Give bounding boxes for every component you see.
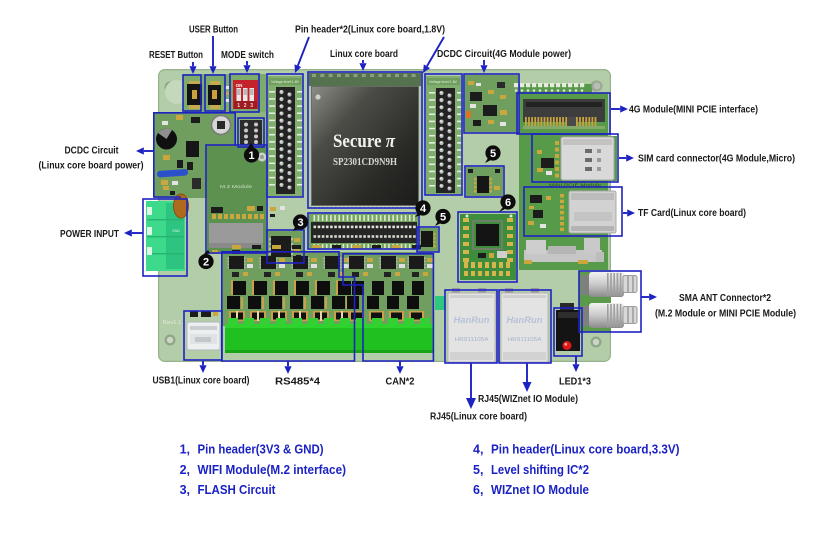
svg-text:5: 5 [490,148,496,160]
svg-text:5: 5 [440,211,446,223]
svg-text:3,: 3, [180,483,190,497]
svg-text:5,: 5, [473,463,483,477]
svg-text:1: 1 [237,103,240,109]
svg-text:Level shifting IC*2: Level shifting IC*2 [491,463,589,477]
svg-text:LED1*3: LED1*3 [559,377,591,388]
svg-text:SP2301CD9N9H: SP2301CD9N9H [333,157,397,168]
svg-text:HR911105A: HR911105A [455,337,489,343]
svg-text:GND: GND [172,229,180,233]
svg-text:M.2 Module: M.2 Module [220,184,253,189]
svg-text:Pin header*2(Linux core board,: Pin header*2(Linux core board,1.8V) [295,25,445,36]
svg-text:(M.2 Module or MINI PCIE Modul: (M.2 Module or MINI PCIE Module) [655,309,796,320]
svg-text:SMA ANT Connector*2: SMA ANT Connector*2 [679,293,771,304]
svg-text:Pin header(3V3 & GND): Pin header(3V3 & GND) [198,443,324,457]
svg-text:SIM card connector(4G Module,M: SIM card connector(4G Module,Micro) [638,154,795,165]
svg-text:6,: 6, [473,483,483,497]
svg-text:USB1(Linux core board): USB1(Linux core board) [153,376,250,387]
svg-text:CAN*2: CAN*2 [386,377,415,388]
svg-text:RJ45(WIZnet IO Module): RJ45(WIZnet IO Module) [478,394,578,405]
svg-text:Voltage level:1.8V: Voltage level:1.8V [271,80,300,84]
svg-text:FLASH Circuit: FLASH Circuit [198,483,277,497]
svg-text:TF Card(Linux core board): TF Card(Linux core board) [638,208,746,219]
svg-text:WIFI Module(M.2 interface): WIFI Module(M.2 interface) [198,463,347,477]
svg-text:ON: ON [236,83,243,88]
svg-text:Voltage level:1.8V: Voltage level:1.8V [429,80,458,84]
svg-text:3: 3 [297,217,303,229]
svg-text:Linux core board: Linux core board [330,49,398,60]
svg-text:Rev1.1: Rev1.1 [163,320,182,326]
svg-text:Secure π: Secure π [333,131,396,152]
svg-text:Pin header(Linux core board,3.: Pin header(Linux core board,3.3V) [491,443,680,457]
svg-text:(Linux core board power): (Linux core board power) [39,161,144,172]
svg-text:RS485*4: RS485*4 [275,377,320,388]
svg-text:4: 4 [420,203,427,215]
svg-text:4G Module(MINI PCIE interface): 4G Module(MINI PCIE interface) [629,105,758,116]
svg-text:HR911105A: HR911105A [508,337,542,343]
svg-text:4,: 4, [473,443,483,457]
svg-text:1: 1 [248,150,254,162]
svg-text:2,: 2, [180,463,190,477]
svg-text:1,: 1, [180,443,190,457]
svg-text:WIZnet IO Module: WIZnet IO Module [491,483,589,497]
svg-text:6: 6 [505,197,511,209]
svg-text:RJ45(Linux core board): RJ45(Linux core board) [430,412,527,423]
svg-text:2: 2 [203,256,209,268]
svg-text:3: 3 [250,103,253,109]
svg-text:2: 2 [244,103,247,109]
svg-text:HanRun: HanRun [454,315,491,325]
svg-text:DCDC Circuit(4G Module power): DCDC Circuit(4G Module power) [437,49,571,60]
svg-text:MODE switch: MODE switch [221,50,274,61]
svg-text:USER Button: USER Button [189,25,238,36]
svg-text:RESET Button: RESET Button [149,50,203,61]
svg-text:HanRun: HanRun [507,315,544,325]
svg-text:DCDC Circuit: DCDC Circuit [65,146,120,157]
svg-text:POWER INPUT: POWER INPUT [60,229,119,240]
